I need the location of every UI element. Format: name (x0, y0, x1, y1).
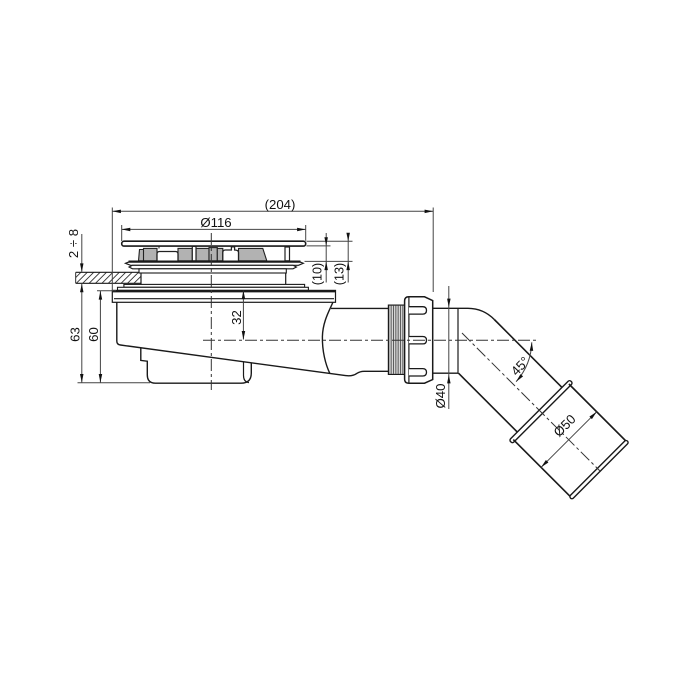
svg-text:Ø116: Ø116 (200, 215, 231, 230)
svg-text:32: 32 (229, 310, 244, 325)
svg-text:60: 60 (86, 327, 101, 342)
svg-text:Ø40: Ø40 (433, 384, 448, 409)
svg-text:(204): (204) (265, 197, 296, 212)
svg-text:(13): (13) (332, 263, 346, 285)
svg-text:(10): (10) (310, 263, 324, 285)
svg-text:63: 63 (67, 327, 82, 342)
svg-text:2 ÷ 8: 2 ÷ 8 (66, 229, 81, 258)
